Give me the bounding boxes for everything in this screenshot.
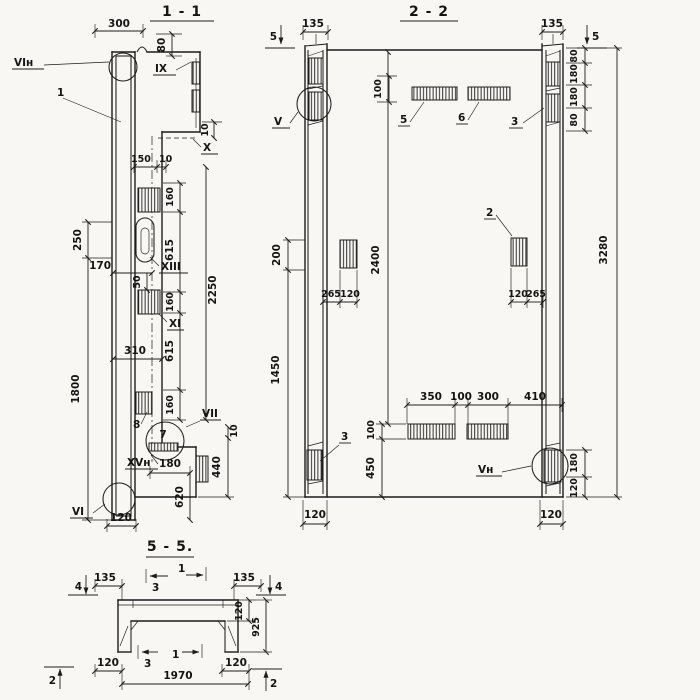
embed-plate: [546, 62, 560, 86]
cut-marker-4-right: 4: [275, 581, 282, 593]
dim-250: 250: [72, 229, 84, 251]
label-VII: VII: [202, 408, 218, 420]
dim-615-b: 615: [164, 340, 176, 362]
label-pos-2: 2: [486, 207, 493, 219]
node-callout-circle-bottom: [103, 483, 135, 515]
dim-150: 150: [131, 154, 151, 165]
label-node-VIn: VIн: [14, 57, 33, 69]
label-pos-3-bottom: 3: [341, 431, 348, 443]
section-1-1-dims: 1 - 1 300 80 VIн 1 IX 10 X 150 10 250 18…: [12, 4, 240, 532]
cut-marker-3-top: 3: [152, 582, 159, 594]
dim-180-a: 180: [569, 64, 580, 84]
weld-strip: [149, 443, 178, 451]
dim-300: 300: [108, 18, 130, 30]
label-node-VI: VI: [72, 506, 84, 518]
dim-310: 310: [124, 345, 146, 357]
dim-180-b: 180: [569, 87, 580, 107]
cut-marker-5-right: 5: [592, 31, 599, 43]
dim-10-step: 10: [200, 123, 211, 137]
edge-notch-plate: [192, 62, 200, 84]
cut-marker-1-bottom: 1: [172, 649, 179, 661]
section-2-2: 2 - 2 5 135 V 100 5 6 3 135 5 80 180 180: [265, 4, 622, 530]
node-callout-circle-top: [109, 53, 137, 81]
dim-80-a: 80: [569, 49, 580, 63]
dim-170: 170: [89, 260, 111, 272]
embed-plate: [138, 188, 160, 212]
dim-10-low: 10: [229, 424, 240, 438]
dim-100-top: 100: [373, 79, 384, 99]
label-pos-6: 6: [458, 112, 465, 124]
embed-bar-5: [412, 87, 457, 100]
dim-135-left: 135: [302, 18, 324, 30]
cut-marker-3-bottom: 3: [144, 658, 151, 670]
dim-160-b: 160: [165, 292, 176, 312]
dim-100-bottom: 100: [366, 420, 377, 440]
dim-350: 350: [420, 391, 442, 403]
embed-bar-6: [468, 87, 510, 100]
cut-marker-4-left: 4: [75, 581, 82, 593]
embed-plate: [136, 392, 152, 414]
dim-120-leg-left: 120: [97, 657, 119, 669]
drawing-sheet: 1 - 1 300 80 VIн 1 IX 10 X 150 10 250 18…: [0, 0, 700, 700]
dim-200: 200: [271, 244, 283, 266]
label-pos-1: 1: [57, 87, 64, 99]
section-5-5: 5 - 5. 4 135 3 1 135 4 120 925 3 1 120: [44, 539, 286, 691]
dim-135-right: 135: [233, 572, 255, 584]
cut-marker-2-left: 2: [49, 675, 56, 687]
label-node-V: V: [274, 116, 283, 128]
label-pos-3-top: 3: [511, 116, 518, 128]
dim-160-c: 160: [165, 395, 176, 415]
section-1-1-outline: [103, 47, 208, 520]
dim-1970: 1970: [163, 670, 192, 682]
cut-marker-2-right: 2: [270, 678, 277, 690]
label-X: X: [203, 142, 211, 154]
dim-450: 450: [365, 457, 377, 479]
embed-plate: [340, 240, 357, 268]
dim-180-br: 180: [569, 453, 580, 473]
lifting-loop-top: [137, 47, 147, 52]
dim-615-a: 615: [164, 239, 176, 261]
section-2-2-outline: [297, 34, 568, 497]
dim-265-lp: 265: [321, 289, 341, 300]
embed-plate: [307, 450, 322, 480]
section-5-5-outline: [118, 600, 238, 652]
dim-135-left: 135: [94, 572, 116, 584]
dim-120-col-right: 120: [540, 509, 562, 521]
dim-410: 410: [524, 391, 546, 403]
embed-bar: [408, 424, 455, 439]
label-XIII: XIII: [161, 261, 181, 273]
label-pos-8: 8: [133, 419, 140, 431]
dim-120-br: 120: [569, 478, 580, 498]
dim-50: 50: [132, 275, 143, 289]
dim-3280: 3280: [598, 235, 610, 264]
section-1-1: 1 - 1 300 80 VIн 1 IX 10 X 150 10 250 18…: [12, 4, 240, 532]
section-title: 1 - 1: [162, 4, 202, 20]
label-XVn: XVн: [127, 457, 150, 469]
label-node-Vn: Vн: [478, 464, 493, 476]
dim-1450: 1450: [270, 355, 282, 384]
embed-plate: [138, 290, 160, 314]
dim-2250: 2250: [207, 275, 219, 304]
section-title: 2 - 2: [409, 4, 449, 20]
dim-265-rp: 265: [526, 289, 546, 300]
label-pos-7: 7: [159, 429, 166, 441]
technical-drawing: 1 - 1 300 80 VIн 1 IX 10 X 150 10 250 18…: [0, 0, 700, 700]
embed-plate-2: [511, 238, 527, 266]
cut-marker-1-top: 1: [178, 563, 185, 575]
embed-bar: [467, 424, 508, 439]
embed-plate: [309, 58, 323, 84]
embed-plate: [544, 450, 561, 482]
dim-2400: 2400: [370, 245, 382, 274]
dim-10-inner: 10: [159, 154, 173, 165]
section-title: 5 - 5.: [147, 539, 193, 555]
embed-plate: [309, 92, 323, 120]
dim-135-right: 135: [541, 18, 563, 30]
dim-120-lp: 120: [340, 289, 360, 300]
dim-620: 620: [174, 486, 186, 508]
label-XI: XI: [169, 318, 181, 330]
edge-notch-plate: [192, 90, 200, 112]
dim-440: 440: [211, 456, 223, 478]
embed-plate: [546, 94, 560, 122]
dim-160-a: 160: [165, 187, 176, 207]
section-5-5-dims: 5 - 5. 4 135 3 1 135 4 120 925 3 1 120: [44, 539, 286, 691]
dim-120-web: 120: [234, 601, 245, 621]
lifting-loop: [136, 218, 154, 262]
dim-80: 80: [156, 38, 168, 53]
dim-80-b: 80: [569, 113, 580, 127]
label-pos-5: 5: [400, 114, 407, 126]
dim-1800: 1800: [70, 374, 82, 403]
cut-marker-5-left: 5: [270, 31, 277, 43]
label-IX: IX: [155, 63, 167, 75]
dim-100-gap: 100: [450, 391, 472, 403]
dim-120-col-left: 120: [304, 509, 326, 521]
dim-120-leg-right: 120: [225, 657, 247, 669]
dim-180-low: 180: [159, 458, 181, 470]
node-callout-circle-7: [146, 422, 184, 460]
bracket-plate: [196, 456, 208, 482]
dim-300: 300: [477, 391, 499, 403]
dim-120-bottom: 120: [110, 512, 132, 524]
dim-925: 925: [251, 617, 262, 637]
